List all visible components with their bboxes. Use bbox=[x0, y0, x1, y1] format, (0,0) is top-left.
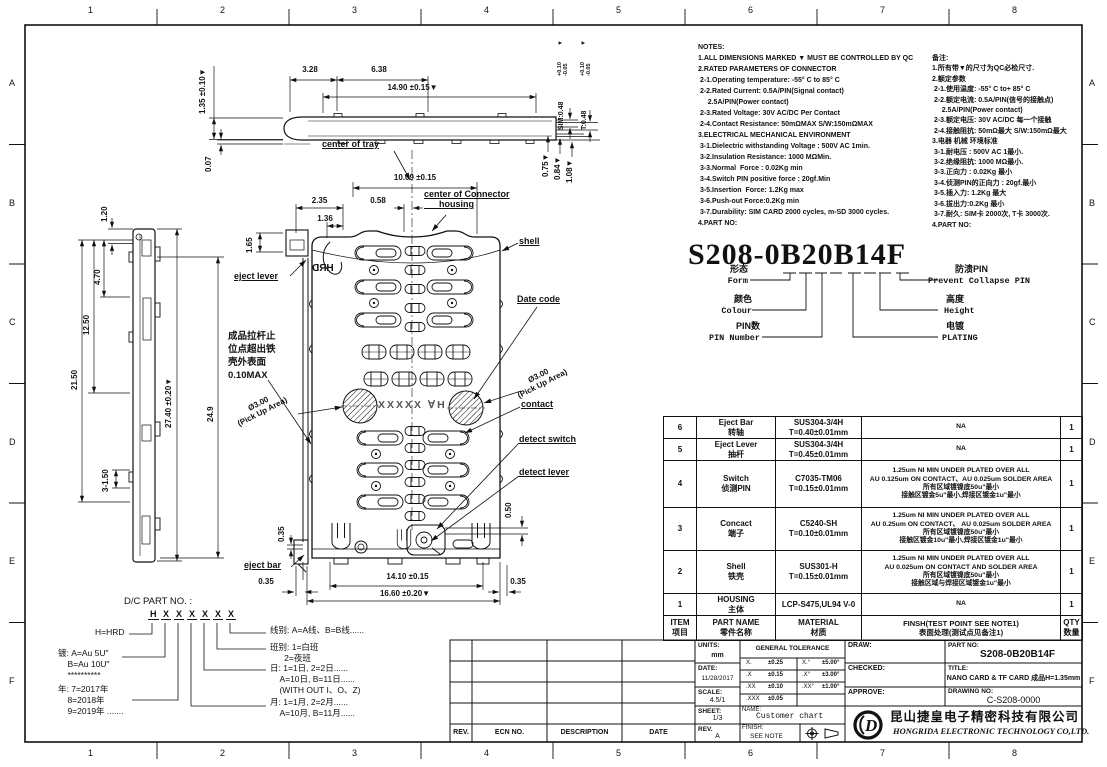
dc-part-no-title: D/C PART NO. : bbox=[124, 597, 192, 608]
prevent-label-en: Prevent Collapse PIN bbox=[928, 277, 1030, 287]
plating-label-en: PLATING bbox=[942, 334, 978, 344]
bom-qty: 1 bbox=[1061, 417, 1083, 439]
bom-qty: 1 bbox=[1061, 594, 1083, 616]
bom-finish: NA bbox=[862, 417, 1061, 439]
shell-label: shell bbox=[519, 236, 540, 246]
zone-row-e: E bbox=[9, 556, 15, 566]
bom-part-name: Eject Lever 抽杆 bbox=[697, 439, 776, 461]
zone-col-5b: 5 bbox=[616, 748, 621, 758]
bom-material: SUS304-3/4H T=0.40±0.01mm bbox=[776, 417, 862, 439]
dim-12-50: 12.50 bbox=[82, 315, 91, 335]
company-name-en: HONGRIDA ELECTRONIC TECHNOLOGY CO,LTD. bbox=[893, 727, 1089, 737]
dim-3-1-50: 3-1.50 bbox=[101, 469, 110, 492]
table-row: 1HOUSING 主体LCP-S475,UL94 V-0NA1 bbox=[664, 594, 1083, 616]
pin-label-en: PIN Number bbox=[680, 334, 760, 344]
bom-part-name: Switch 侦测PIN bbox=[697, 461, 776, 508]
date-label: DATE: bbox=[698, 665, 717, 672]
bom-item: 3 bbox=[664, 508, 697, 551]
dim-6-38: 6.38 bbox=[337, 65, 421, 74]
dim-t-0-48: T:0.48 bbox=[581, 111, 589, 130]
dc-shift-entry: 班别: 1=白班 2=夜班 bbox=[270, 642, 318, 664]
bom-item: 4 bbox=[664, 461, 697, 508]
zone-col-6b: 6 bbox=[748, 748, 753, 758]
dim-1-35: 1.35 ±0.10▼ bbox=[198, 68, 207, 114]
zone-col-8b: 8 bbox=[1012, 748, 1017, 758]
bom-header-material: MATERIAL 材质 bbox=[776, 616, 862, 641]
pin-label-cn: PIN数 bbox=[680, 321, 760, 331]
dc-char-1: H bbox=[148, 609, 159, 620]
date-code-marking: XXXXX ∀H bbox=[378, 399, 447, 411]
svg-text:D: D bbox=[864, 716, 877, 735]
height-label-en: Height bbox=[944, 307, 975, 317]
zone-row-a2: A bbox=[1089, 78, 1095, 88]
projection-symbol-icon bbox=[804, 727, 842, 740]
dc-day-entry: 日: 1=1日, 2=2日...... A=10日, B=11日...... (… bbox=[270, 663, 361, 696]
checked-label: CHECKED: bbox=[848, 665, 885, 673]
dc-char-7: X bbox=[226, 609, 236, 620]
rev-table-description-header: DESCRIPTION bbox=[547, 729, 622, 737]
bom-qty: 1 bbox=[1061, 551, 1083, 594]
zone-row-c2: C bbox=[1089, 317, 1096, 327]
dim-21-50: 21.50 bbox=[70, 370, 79, 390]
bom-material: LCP-S475,UL94 V-0 bbox=[776, 594, 862, 616]
contact-label: contact bbox=[521, 399, 553, 409]
tol-x-label: X. bbox=[746, 660, 752, 667]
dim-3-28: 3.28 bbox=[288, 65, 332, 74]
bom-material: C5240-SH T=0.10±0.01mm bbox=[776, 508, 862, 551]
date-value: 11/28/2017 bbox=[695, 675, 740, 682]
dim-27-40: 27.40 ±0.20▼ bbox=[164, 378, 173, 428]
zone-col-2: 2 bbox=[220, 5, 225, 15]
pickup-area-left-label: Ø3.00 (Pick Up Area) bbox=[232, 387, 289, 428]
bom-header-finish: FINSH(TEST POINT SEE NOTE1) 表面处理(测试点见备注1… bbox=[862, 616, 1061, 641]
tol-dxdeg-value: ±3.00° bbox=[822, 672, 839, 679]
zone-col-3: 3 bbox=[352, 5, 357, 15]
zone-row-a: A bbox=[9, 78, 15, 88]
dim-t-tolerance: +0.10 -0.05 bbox=[580, 62, 593, 76]
dim-0-07: 0.07 bbox=[204, 156, 213, 172]
rev-table-ecn-header: ECN NO. bbox=[472, 729, 547, 737]
height-label-cn: 高度 bbox=[946, 294, 964, 304]
zone-col-3b: 3 bbox=[352, 748, 357, 758]
dim-14-90: 14.90 ±0.15▼ bbox=[355, 83, 470, 92]
dc-char-3: X bbox=[174, 609, 184, 620]
general-tolerance-title: GENERAL TOLERANCE bbox=[740, 645, 845, 652]
company-name-cn: 昆山捷皇电子精密科技有限公司 bbox=[890, 710, 1079, 724]
drawing-no-value: C-S208-0000 bbox=[945, 695, 1082, 705]
scale-value: 4.5/1 bbox=[695, 697, 740, 705]
colour-label-en: Colour bbox=[692, 307, 752, 317]
zone-row-e2: E bbox=[1089, 556, 1095, 566]
dim-1-36: 1.36 bbox=[305, 214, 345, 223]
colour-label-cn: 颜色 bbox=[692, 294, 752, 304]
tol-dxdeg-label: .X° bbox=[802, 672, 810, 679]
stop-note: 成品拉杆止 位点超出铁 壳外表面 0.10MAX bbox=[228, 330, 276, 382]
dim-1-20: 1.20 bbox=[100, 206, 109, 222]
bom-qty: 1 bbox=[1061, 508, 1083, 551]
zone-col-7: 7 bbox=[880, 5, 885, 15]
detect-lever-label: detect lever bbox=[519, 467, 569, 477]
bom-header-row: ITEM 项目PART NAME 零件名称MATERIAL 材质FINSH(TE… bbox=[664, 616, 1083, 641]
units-value: mm bbox=[695, 652, 740, 660]
dc-h-entry: H=HRD bbox=[95, 628, 125, 638]
tol-dx-value: ±0.15 bbox=[768, 672, 783, 679]
detect-switch-label: detect switch bbox=[519, 434, 576, 444]
finish-label: FINISH: bbox=[742, 725, 763, 732]
bom-material: C7035-TM06 T=0.15±0.01mm bbox=[776, 461, 862, 508]
dc-year-entry: 年: 7=2017年 8=2018年 9=2019年 ....... bbox=[58, 684, 123, 717]
table-row: 5Eject Lever 抽杆SUS304-3/4H T=0.45±0.01mm… bbox=[664, 439, 1083, 461]
dim-sim-0-48: SIM:0.48 bbox=[558, 102, 566, 130]
eject-bar-label: eject bar bbox=[244, 560, 281, 570]
dc-month-entry: 月: 1=1月, 2=2月...... A=10月, B=11月...... bbox=[270, 697, 355, 719]
zone-col-2b: 2 bbox=[220, 748, 225, 758]
dim-24-9: 24.9 bbox=[206, 406, 215, 422]
zone-col-8: 8 bbox=[1012, 5, 1017, 15]
zone-row-c: C bbox=[9, 317, 16, 327]
dim-0-35-bottom-left: 0.35 bbox=[248, 577, 284, 586]
title-value: NANO CARD & TF CARD 成品H=1.35mm bbox=[945, 675, 1082, 683]
prevent-label-cn: 防溃PIN bbox=[955, 264, 988, 274]
qc-mark-sim: ▼ bbox=[558, 40, 565, 46]
zone-col-1b: 1 bbox=[88, 748, 93, 758]
bom-item: 5 bbox=[664, 439, 697, 461]
bom-item: 1 bbox=[664, 594, 697, 616]
pickup-area-right-label: Ø3.00 (Pick Up Area) bbox=[512, 359, 569, 400]
dim-0-84: 0.84▼ bbox=[553, 157, 562, 181]
dim-0-35-left: 0.35 bbox=[277, 526, 286, 542]
table-row: 2Shell 铁壳SUS301-H T=0.15±0.01mm1.25um NI… bbox=[664, 551, 1083, 594]
tol-x-value: ±0.25 bbox=[768, 660, 783, 667]
form-label-cn: 形态 bbox=[690, 264, 748, 274]
dim-0-58: 0.58 bbox=[360, 196, 396, 205]
rev-table-rev-header: REV. bbox=[450, 729, 472, 737]
dim-0-35-bottom-right: 0.35 bbox=[500, 577, 536, 586]
sheet-value: 1/3 bbox=[695, 715, 740, 723]
date-code-label: Date code bbox=[517, 294, 560, 304]
zone-row-b: B bbox=[9, 198, 15, 208]
tol-dxx-value: ±0.10 bbox=[768, 684, 783, 691]
bom-part-name: Concact 端子 bbox=[697, 508, 776, 551]
units-label: UNITS: bbox=[698, 642, 720, 649]
zone-row-f: F bbox=[9, 676, 15, 686]
dc-char-4: X bbox=[187, 609, 197, 620]
zone-row-d2: D bbox=[1089, 437, 1096, 447]
dc-char-2: X bbox=[161, 609, 171, 620]
bom-finish: 1.25um NI MIN UNDER PLATED OVER ALL AU 0… bbox=[862, 508, 1061, 551]
zone-row-f2: F bbox=[1089, 676, 1095, 686]
rev-value: A bbox=[695, 733, 740, 741]
tol-dxxx-value: ±0.05 bbox=[768, 696, 783, 703]
dc-char-5: X bbox=[200, 609, 210, 620]
tol-dxxdeg-value: ±1.00° bbox=[822, 684, 839, 691]
scale-label: SCALE: bbox=[698, 689, 722, 696]
table-row: 6Eject Bar 转轴SUS304-3/4H T=0.40±0.01mmNA… bbox=[664, 417, 1083, 439]
dim-10-09: 10.09 ±0.15 bbox=[353, 173, 477, 182]
bom-part-name: Eject Bar 转轴 bbox=[697, 417, 776, 439]
bom-finish: NA bbox=[862, 594, 1061, 616]
bom-finish: 1.25um NI MIN UNDER PLATED OVER ALL AU 0… bbox=[862, 461, 1061, 508]
dc-char-6: X bbox=[213, 609, 223, 620]
tol-dxx-label: .XX bbox=[746, 684, 756, 691]
finish-value: SEE NOTE bbox=[750, 733, 783, 740]
dim-0-75: 0.75▼ bbox=[541, 154, 550, 178]
qc-mark-t: ▼ bbox=[581, 40, 588, 46]
dc-plating-entry: 镀: A=Au 5U" B=Au 10U" ********** bbox=[58, 648, 109, 681]
table-row: 4Switch 侦测PINC7035-TM06 T=0.15±0.01mm1.2… bbox=[664, 461, 1083, 508]
name-value: Customer chart bbox=[756, 712, 823, 721]
hrd-marking: HRD bbox=[312, 263, 334, 275]
notes-chinese: 备注: 1.所有带▼的尺寸为QC必检尺寸. 2.额定参数 2-1.使用温度: -… bbox=[932, 54, 1067, 231]
bom-header-part-name: PART NAME 零件名称 bbox=[697, 616, 776, 641]
notes-english: NOTES: 1.ALL DIMENSIONS MARKED ▼ MUST BE… bbox=[698, 42, 913, 229]
bom-part-name: Shell 铁壳 bbox=[697, 551, 776, 594]
form-label-en: Form bbox=[690, 277, 748, 287]
dim-sim-tolerance: +0.10 -0.05 bbox=[557, 62, 570, 76]
zone-row-b2: B bbox=[1089, 198, 1095, 208]
bom-header-item: ITEM 项目 bbox=[664, 616, 697, 641]
dim-1-08: 1.08▼ bbox=[565, 160, 574, 184]
draw-label: DRAW: bbox=[848, 642, 872, 650]
eject-lever-label: eject lever bbox=[234, 271, 278, 281]
dim-2-35: 2.35 bbox=[296, 196, 343, 205]
dim-14-10: 14.10 ±0.15 bbox=[340, 572, 475, 581]
dim-0-50: 0.50 bbox=[504, 502, 513, 518]
company-logo-icon: D bbox=[852, 709, 884, 741]
bom-table: 6Eject Bar 转轴SUS304-3/4H T=0.40±0.01mmNA… bbox=[663, 416, 1083, 641]
tol-xdeg-value: ±5.00° bbox=[822, 660, 839, 667]
zone-col-1: 1 bbox=[88, 5, 93, 15]
zone-col-7b: 7 bbox=[880, 748, 885, 758]
rev-table-date-header: DATE bbox=[622, 729, 695, 737]
zone-row-d: D bbox=[9, 437, 16, 447]
bom-material: SUS304-3/4H T=0.45±0.01mm bbox=[776, 439, 862, 461]
plating-label-cn: 电镀 bbox=[946, 321, 964, 331]
zone-col-5: 5 bbox=[616, 5, 621, 15]
dim-16-60: 16.60 ±0.20▼ bbox=[335, 589, 475, 598]
bom-item: 2 bbox=[664, 551, 697, 594]
tol-dx-label: .X bbox=[746, 672, 752, 679]
dim-1-65: 1.65 bbox=[245, 237, 254, 253]
part-no-value: S208-0B20B14F bbox=[955, 649, 1080, 661]
center-of-tray-label: center of tray bbox=[322, 139, 379, 149]
tol-dxxdeg-label: .XX° bbox=[802, 684, 814, 691]
tol-xdeg-label: X.° bbox=[802, 660, 810, 667]
center-of-connector-label: center of Connector housing bbox=[424, 189, 510, 209]
bom-header-qty: QTY 数量 bbox=[1061, 616, 1083, 641]
bom-finish: NA bbox=[862, 439, 1061, 461]
bom-qty: 1 bbox=[1061, 439, 1083, 461]
bom-material: SUS301-H T=0.15±0.01mm bbox=[776, 551, 862, 594]
dim-4-70: 4.70 bbox=[93, 269, 102, 285]
approve-label: APPROVE: bbox=[848, 689, 885, 697]
dc-line-entry: 线别: A=A线、B=B线...... bbox=[270, 626, 364, 636]
bom-item: 6 bbox=[664, 417, 697, 439]
bom-qty: 1 bbox=[1061, 461, 1083, 508]
table-row: 3Concact 端子C5240-SH T=0.10±0.01mm1.25um … bbox=[664, 508, 1083, 551]
bom-part-name: HOUSING 主体 bbox=[697, 594, 776, 616]
title-label: TITLE: bbox=[948, 665, 968, 672]
zone-col-4b: 4 bbox=[484, 748, 489, 758]
zone-col-4: 4 bbox=[484, 5, 489, 15]
drawing-sheet: 1 2 3 4 5 6 7 8 1 2 3 4 5 6 7 8 A B C D … bbox=[0, 0, 1107, 767]
zone-col-6: 6 bbox=[748, 5, 753, 15]
tol-dxxx-label: .XXX bbox=[746, 696, 760, 703]
bom-finish: 1.25um NI MIN UNDER PLATED OVER ALL AU 0… bbox=[862, 551, 1061, 594]
